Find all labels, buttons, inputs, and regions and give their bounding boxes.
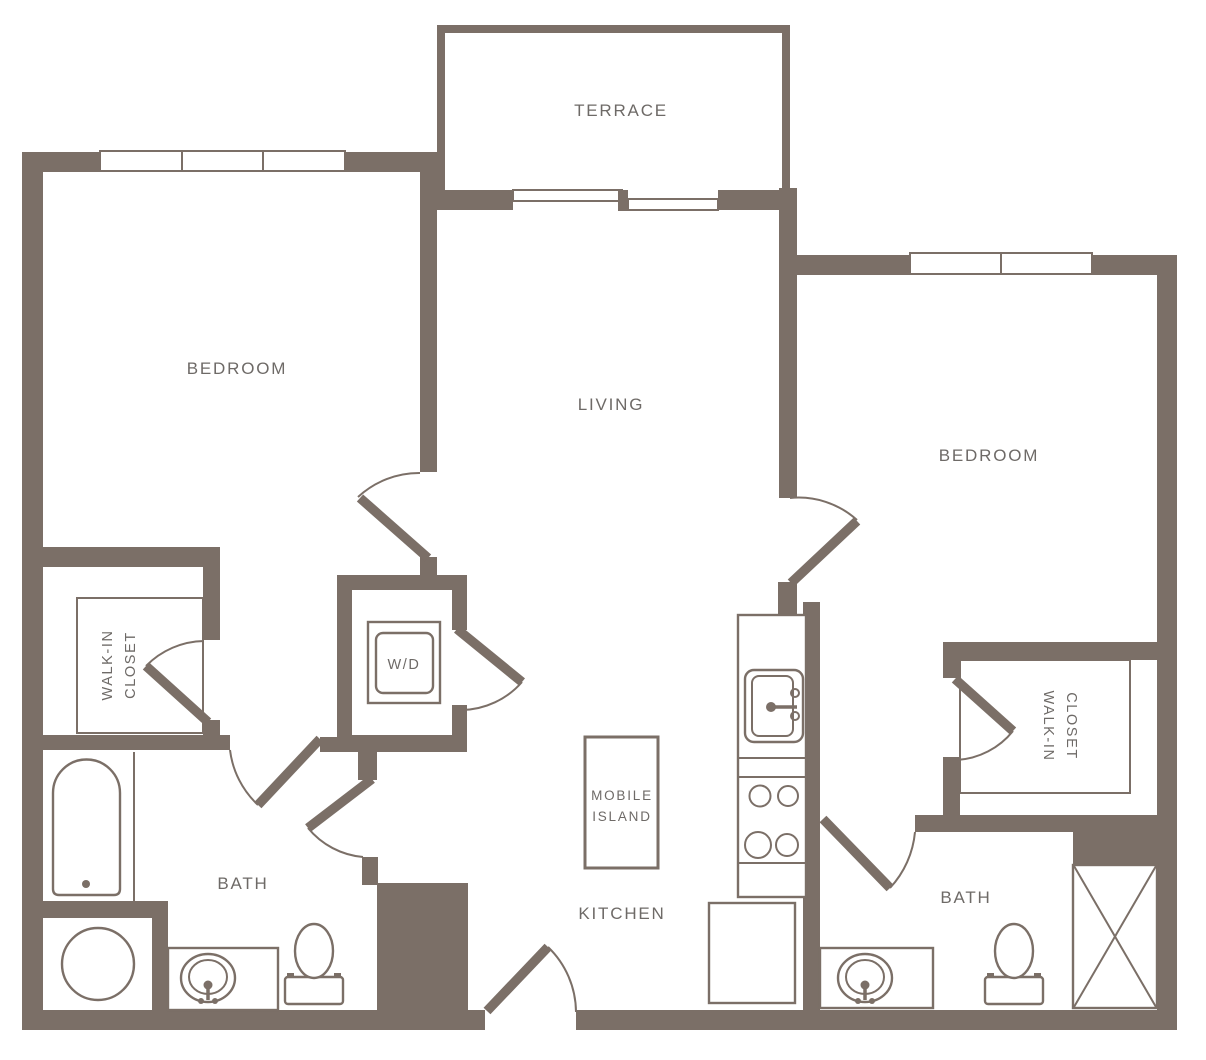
door-swing-arc bbox=[957, 731, 1013, 760]
wall bbox=[943, 642, 960, 678]
floor-plan: TERRACE BEDROOM LIVING BEDROOM KITCHEN B… bbox=[0, 0, 1206, 1060]
sliding-door bbox=[513, 190, 718, 211]
toilet-tank bbox=[285, 977, 343, 1004]
kitchen-counter bbox=[738, 615, 806, 897]
wall bbox=[943, 757, 960, 817]
wall bbox=[320, 737, 467, 752]
closet-right-label-line2: CLOSET bbox=[1063, 692, 1079, 760]
tub-drain bbox=[82, 880, 90, 888]
washer-dryer-label: W/D bbox=[388, 657, 421, 673]
wall bbox=[452, 575, 467, 630]
toilet-bowl bbox=[295, 924, 333, 978]
bath-right-label: BATH bbox=[940, 888, 991, 907]
floor-plan-drawing: TERRACE BEDROOM LIVING BEDROOM KITCHEN B… bbox=[0, 0, 1206, 1060]
bath-right-fixtures bbox=[820, 865, 1157, 1008]
wall bbox=[152, 901, 168, 1010]
door-closet-right bbox=[955, 679, 1013, 760]
water-heater-circle bbox=[62, 928, 134, 1000]
wall bbox=[22, 152, 43, 1030]
door-wd-closet bbox=[457, 629, 522, 710]
terrace-wall bbox=[782, 25, 790, 188]
door-bath-right bbox=[823, 819, 915, 888]
closet-left-label-line2: CLOSET bbox=[123, 631, 139, 699]
living-label: LIVING bbox=[578, 395, 645, 414]
door-hallway bbox=[308, 779, 372, 857]
wall bbox=[943, 642, 1177, 660]
door-closet-left bbox=[146, 641, 208, 722]
faucet-base bbox=[861, 981, 870, 990]
window bbox=[100, 151, 345, 171]
door-leaf bbox=[308, 779, 372, 828]
bedroom-right-window bbox=[910, 253, 1092, 274]
wall bbox=[22, 735, 230, 750]
door-leaf bbox=[457, 629, 522, 682]
vanity-right-sink bbox=[838, 954, 892, 1004]
door-entry bbox=[487, 947, 576, 1012]
bath-left-label: BATH bbox=[217, 874, 268, 893]
wall bbox=[337, 575, 467, 590]
sliding-door-center-post bbox=[618, 190, 628, 211]
faucet-handle bbox=[198, 998, 204, 1004]
wall bbox=[915, 815, 1177, 832]
refrigerator bbox=[709, 903, 795, 1003]
kitchen-sink bbox=[745, 670, 803, 742]
terrace-wall bbox=[437, 25, 790, 33]
shower bbox=[1073, 865, 1157, 1008]
door-bedroom-right bbox=[790, 498, 857, 583]
door-leaf bbox=[360, 498, 428, 558]
door-swing-arc bbox=[146, 641, 204, 666]
wall bbox=[420, 557, 437, 575]
door-leaf bbox=[955, 679, 1013, 731]
bathtub bbox=[53, 760, 120, 895]
wall bbox=[377, 883, 468, 1013]
bedroom-right-label: BEDROOM bbox=[939, 446, 1039, 465]
mobile-island-label-line2: ISLAND bbox=[592, 809, 652, 824]
sliding-door-panel bbox=[628, 199, 718, 210]
door-bath-left bbox=[230, 739, 320, 805]
door-leaf bbox=[146, 666, 208, 722]
faucet-handle bbox=[855, 998, 861, 1004]
door-leaf bbox=[791, 521, 857, 583]
bedroom-left-label: BEDROOM bbox=[187, 359, 287, 378]
wall bbox=[779, 188, 797, 498]
door-bedroom-left bbox=[358, 473, 428, 558]
kitchen-label: KITCHEN bbox=[578, 904, 665, 923]
door-leaf bbox=[823, 819, 890, 888]
door-swing-arc bbox=[462, 682, 522, 710]
faucet-base bbox=[204, 981, 213, 990]
wall bbox=[203, 567, 220, 640]
toilet-left bbox=[285, 924, 343, 1004]
bath-left-fixtures bbox=[53, 752, 343, 1010]
vanity-left-sink bbox=[181, 954, 235, 1004]
door-leaf bbox=[258, 739, 320, 805]
wall bbox=[1073, 832, 1157, 865]
toilet-bowl bbox=[995, 924, 1033, 978]
wall bbox=[22, 547, 220, 567]
wall bbox=[420, 172, 437, 472]
door-swing-arc bbox=[548, 947, 576, 1012]
wall bbox=[358, 752, 377, 780]
terrace-wall bbox=[437, 25, 445, 190]
wall bbox=[337, 575, 352, 750]
toilet-right bbox=[985, 924, 1043, 1004]
toilet-tank bbox=[985, 977, 1043, 1004]
closet-left-label-line1: WALK-IN bbox=[100, 629, 116, 700]
walls bbox=[22, 152, 1177, 1030]
faucet-handle bbox=[212, 998, 218, 1004]
mobile-island-label-line1: MOBILE bbox=[591, 788, 653, 803]
wall bbox=[362, 857, 378, 885]
wall bbox=[576, 1010, 1177, 1030]
wall bbox=[43, 901, 168, 918]
door-swing-arc bbox=[358, 473, 420, 497]
closet-left-shelf-outline bbox=[77, 598, 203, 733]
faucet-handle bbox=[869, 998, 875, 1004]
door-swing-arc bbox=[790, 498, 857, 520]
terrace-label: TERRACE bbox=[574, 101, 668, 120]
faucet-base bbox=[766, 702, 776, 712]
bedroom-left-window bbox=[100, 151, 345, 171]
closet-right-label-line1: WALK-IN bbox=[1040, 690, 1056, 761]
door-swing-arc bbox=[890, 832, 915, 888]
door-swing-arc bbox=[230, 750, 258, 805]
sliding-door-panel bbox=[513, 190, 622, 201]
door-leaf bbox=[487, 947, 548, 1011]
wall bbox=[778, 582, 797, 615]
door-swing-arc bbox=[308, 828, 363, 857]
